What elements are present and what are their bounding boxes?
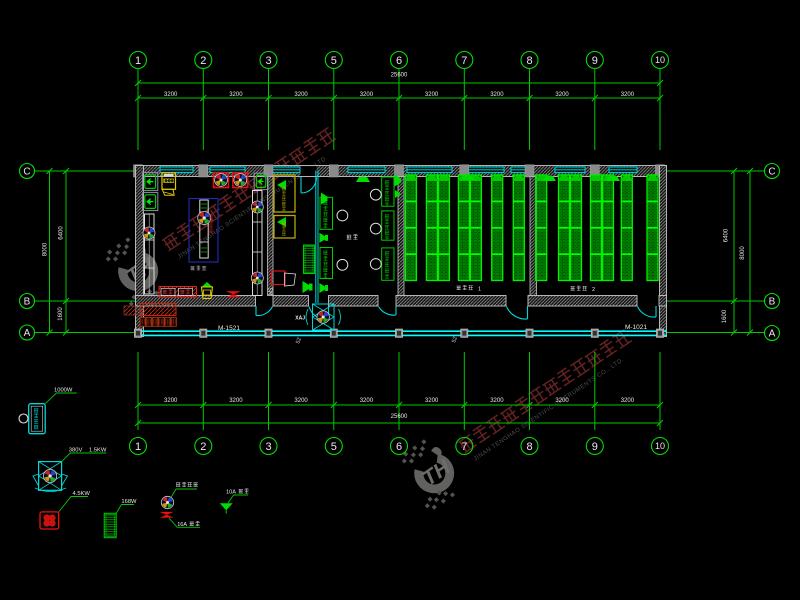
svg-text:1.5KW: 1.5KW: [89, 448, 107, 454]
svg-text:1: 1: [478, 287, 481, 293]
svg-text:6400: 6400: [724, 228, 730, 242]
svg-text:16A: 16A: [177, 522, 187, 528]
svg-text:B: B: [769, 297, 776, 308]
svg-text:3200: 3200: [621, 398, 635, 404]
svg-text:3: 3: [265, 441, 271, 453]
svg-text:8000: 8000: [740, 246, 746, 260]
svg-text:3200: 3200: [555, 398, 569, 404]
svg-text:3: 3: [265, 55, 271, 67]
svg-text:C: C: [768, 167, 775, 178]
svg-text:7: 7: [461, 55, 467, 67]
svg-text:4.5KW: 4.5KW: [73, 491, 91, 497]
svg-text:C: C: [23, 167, 30, 178]
svg-text:10A: 10A: [226, 489, 236, 495]
svg-text:6: 6: [396, 55, 402, 67]
svg-text:3200: 3200: [229, 398, 243, 404]
svg-text:8: 8: [526, 441, 532, 453]
svg-text:1000W: 1000W: [54, 388, 73, 394]
svg-text:3200: 3200: [621, 92, 635, 98]
svg-text:3200: 3200: [294, 92, 308, 98]
svg-text:MS: MS: [269, 287, 275, 295]
svg-text:M-1521: M-1521: [218, 325, 240, 332]
svg-text:3200: 3200: [425, 92, 439, 98]
svg-text:1600: 1600: [58, 307, 64, 321]
svg-text:9: 9: [592, 441, 598, 453]
svg-text:10: 10: [655, 55, 665, 65]
svg-text:M-1021: M-1021: [625, 324, 647, 331]
svg-text:5: 5: [331, 55, 337, 67]
svg-text:25600: 25600: [391, 73, 408, 79]
svg-text:3200: 3200: [555, 92, 569, 98]
svg-text:8: 8: [526, 55, 532, 67]
svg-text:2: 2: [592, 287, 595, 293]
svg-text:3200: 3200: [360, 398, 374, 404]
svg-text:380V: 380V: [69, 448, 83, 454]
svg-text:A: A: [24, 328, 31, 339]
svg-text:B: B: [24, 297, 31, 308]
svg-text:1: 1: [135, 441, 141, 453]
svg-text:6: 6: [396, 441, 402, 453]
svg-text:A: A: [769, 329, 776, 340]
svg-text:7: 7: [461, 441, 467, 453]
svg-text:XAJ: XAJ: [295, 316, 305, 322]
svg-text:3200: 3200: [490, 398, 504, 404]
svg-text:3200: 3200: [425, 398, 439, 404]
svg-text:5: 5: [331, 441, 337, 453]
svg-text:25600: 25600: [391, 414, 408, 420]
svg-text:3200: 3200: [294, 398, 308, 404]
svg-text:9: 9: [592, 55, 598, 67]
svg-text:10: 10: [655, 441, 665, 451]
svg-text:3200: 3200: [164, 92, 178, 98]
svg-text:2: 2: [200, 441, 206, 453]
svg-text:2: 2: [200, 55, 206, 67]
svg-text:3200: 3200: [490, 92, 504, 98]
svg-text:3200: 3200: [360, 92, 374, 98]
svg-text:1600: 1600: [722, 309, 728, 323]
svg-text:6400: 6400: [59, 226, 65, 240]
svg-text:8000: 8000: [43, 242, 49, 256]
svg-text:168W: 168W: [121, 499, 137, 505]
svg-text:1: 1: [135, 55, 141, 67]
svg-text:3200: 3200: [229, 92, 243, 98]
svg-text:3200: 3200: [164, 398, 178, 404]
